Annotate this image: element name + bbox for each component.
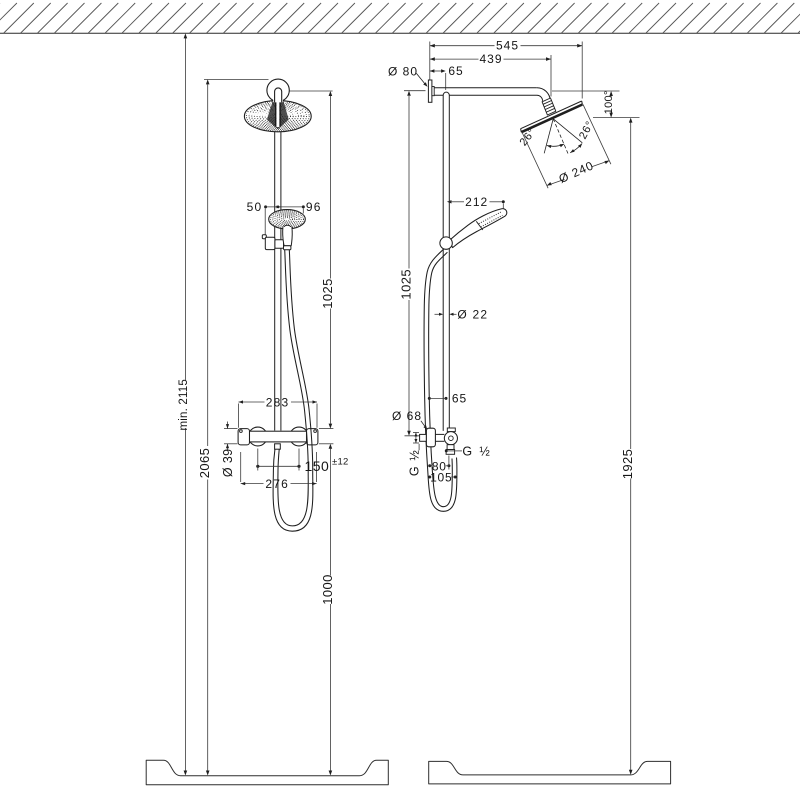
svg-text:276: 276: [265, 477, 289, 491]
svg-text:100°: 100°: [603, 90, 615, 114]
svg-text:Ø 39: Ø 39: [221, 448, 235, 477]
svg-text:Ø 68: Ø 68: [392, 409, 422, 423]
svg-text:65: 65: [448, 64, 463, 78]
svg-text:½: ½: [408, 450, 422, 461]
svg-text:65: 65: [452, 392, 467, 406]
svg-text:545: 545: [496, 39, 519, 53]
svg-text:G: G: [408, 466, 422, 476]
svg-text:50: 50: [247, 200, 263, 214]
svg-text:439: 439: [479, 52, 502, 66]
svg-text:2065: 2065: [197, 448, 212, 479]
svg-text:1025: 1025: [320, 278, 335, 309]
svg-text:1000: 1000: [320, 574, 335, 605]
svg-text:105: 105: [430, 470, 452, 484]
svg-text:96: 96: [306, 200, 322, 214]
svg-text:½: ½: [479, 445, 490, 459]
svg-text:212: 212: [465, 195, 488, 209]
svg-text:1925: 1925: [620, 449, 635, 480]
svg-text:1025: 1025: [399, 269, 414, 300]
svg-text:G: G: [462, 445, 472, 459]
svg-text:283: 283: [266, 395, 290, 409]
svg-text:Ø 22: Ø 22: [457, 308, 488, 322]
svg-text:Ø 80: Ø 80: [388, 65, 418, 79]
svg-text:150: 150: [304, 458, 329, 474]
svg-text:min. 2115: min. 2115: [178, 379, 190, 430]
svg-text:±12: ±12: [332, 457, 349, 468]
